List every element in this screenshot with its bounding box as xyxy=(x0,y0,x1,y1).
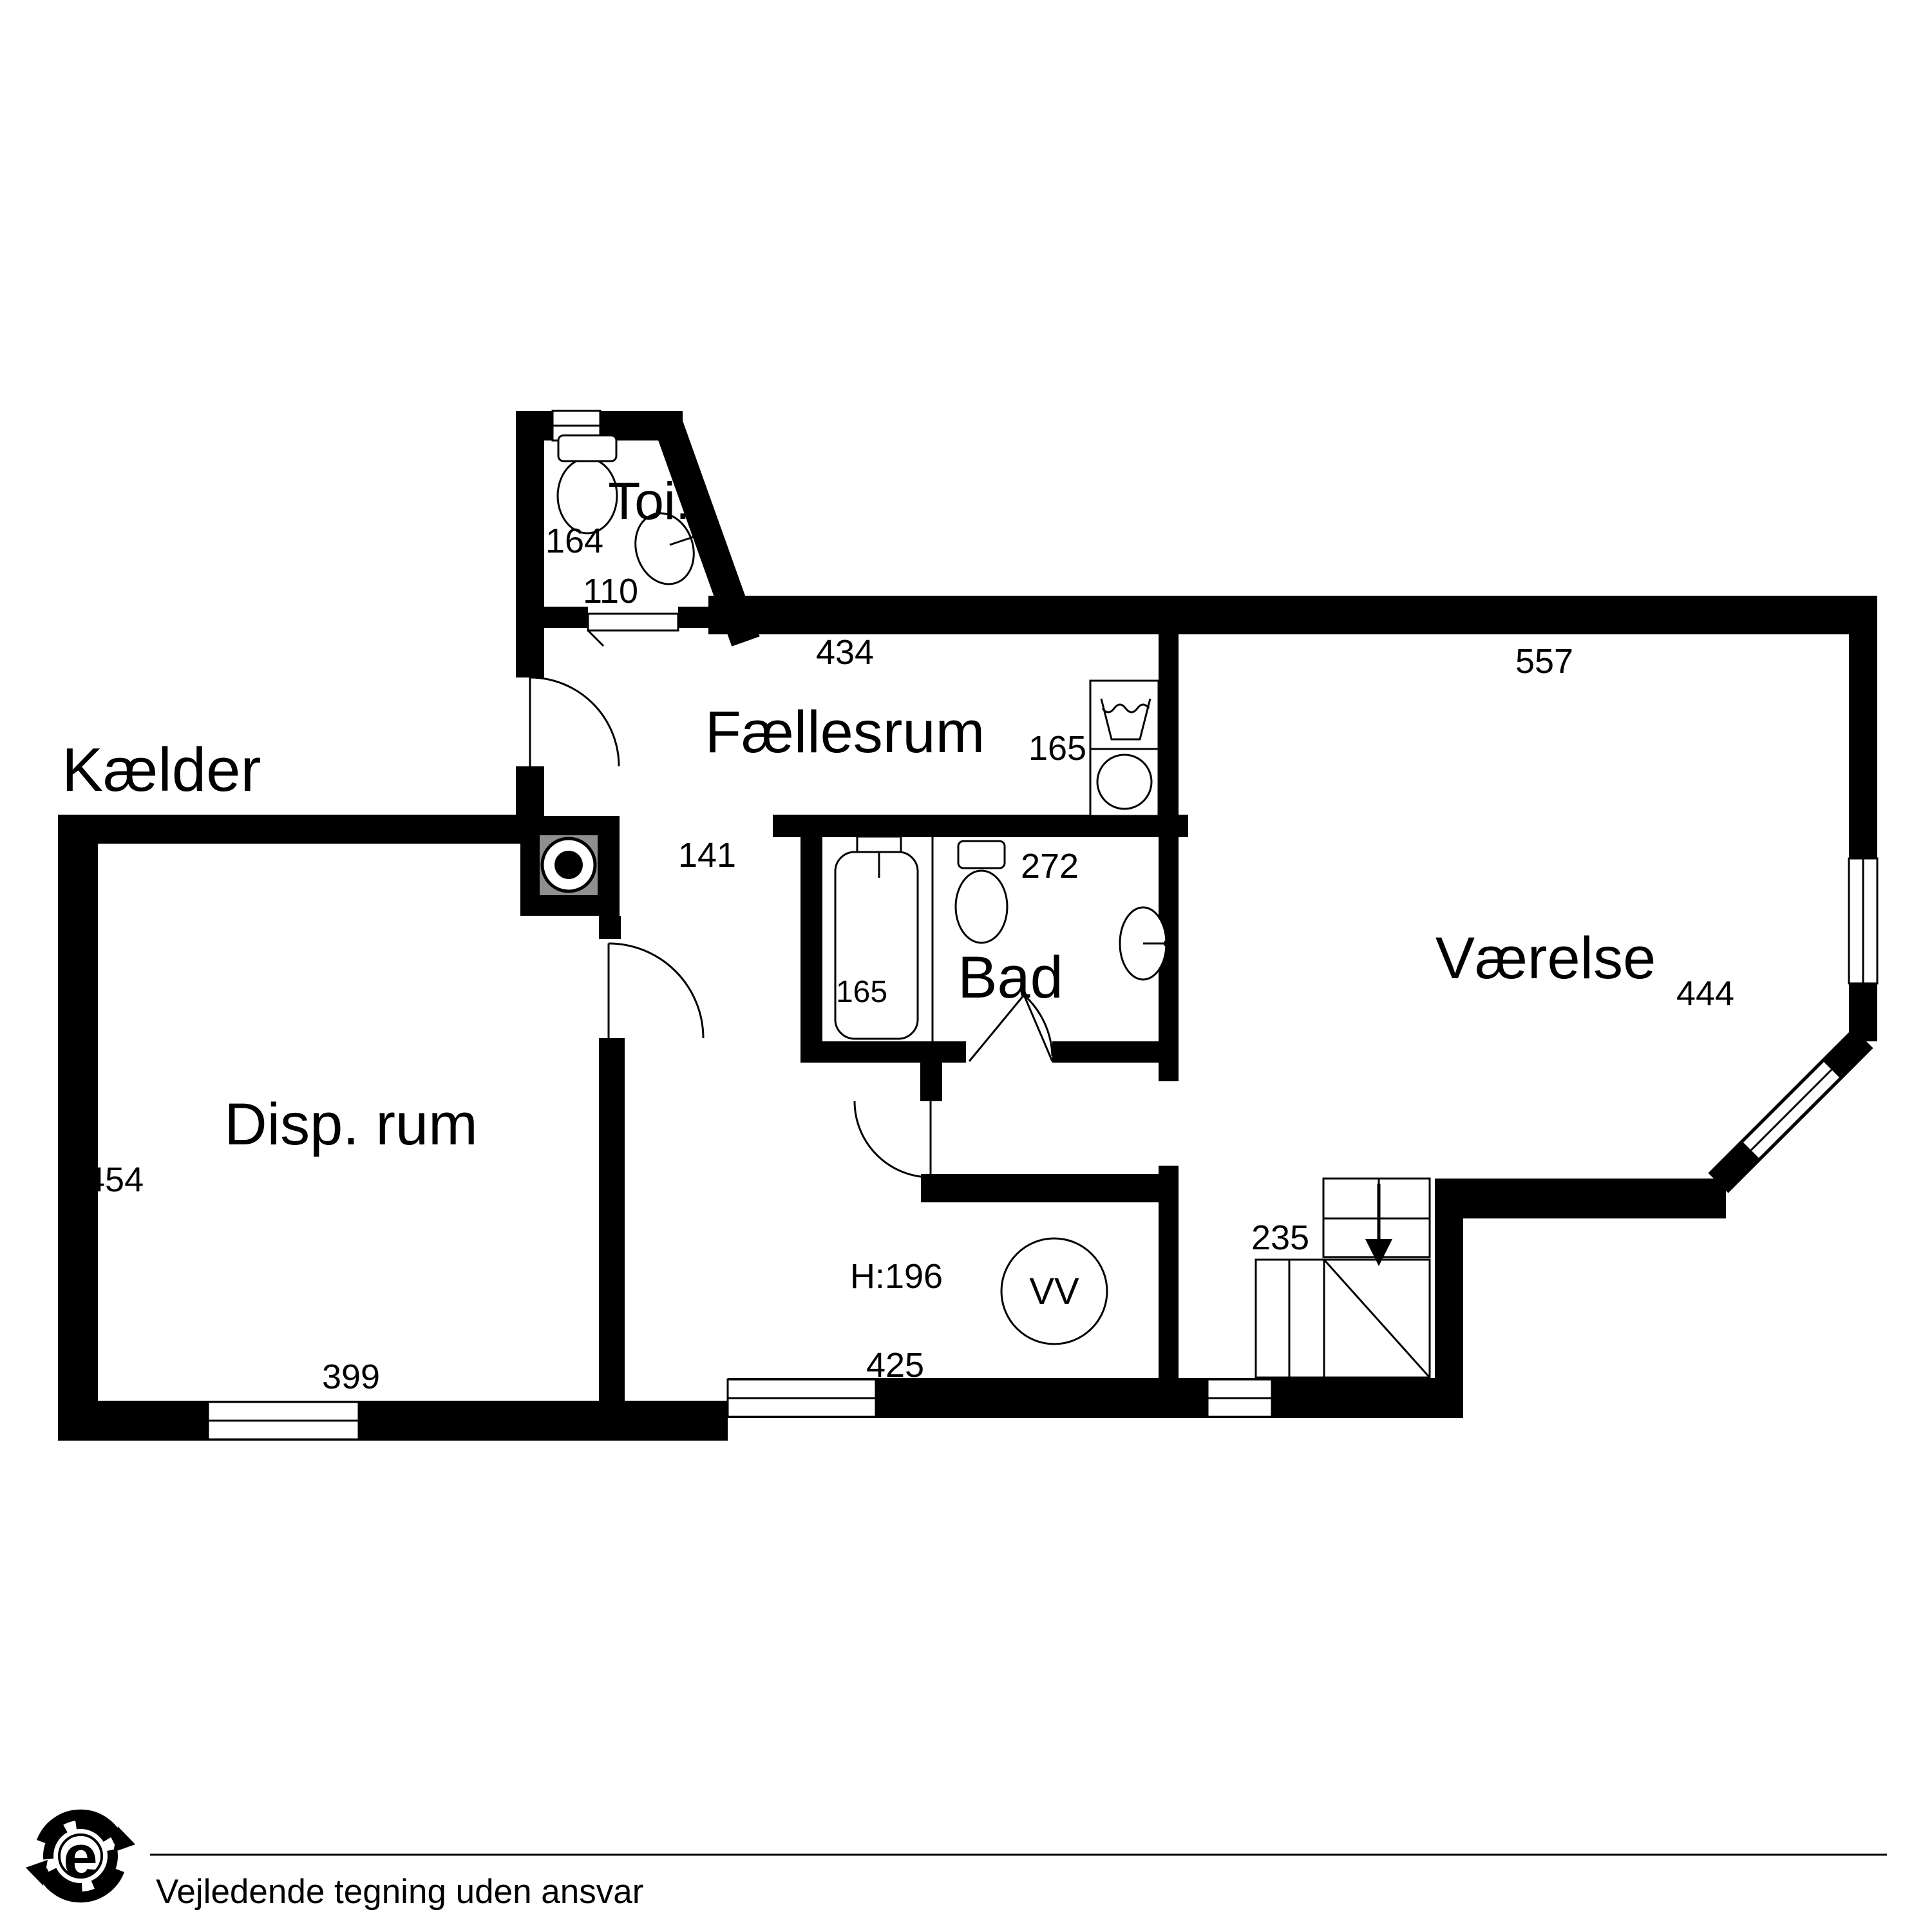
wall-right-upper xyxy=(1849,596,1877,858)
wall-disp-south xyxy=(58,1401,728,1441)
dim-bathtub: 165 xyxy=(836,975,887,1009)
washing-machine-icon xyxy=(1090,681,1159,816)
room-label-faellesrum: Fællesrum xyxy=(705,699,985,765)
chimney-icon xyxy=(520,816,620,916)
sliding-door-toi xyxy=(588,614,678,646)
wall-bad-door-stub xyxy=(920,1063,942,1101)
hot-water-label: VV xyxy=(1029,1271,1079,1312)
wall-chimney-stub xyxy=(599,916,621,939)
footer: e Vejledende tegning uden ansvar xyxy=(26,1815,1887,1911)
logo-letter: e xyxy=(63,1823,97,1891)
dim-vaerelse-top: 557 xyxy=(1515,642,1573,681)
window-disp-south xyxy=(208,1402,359,1439)
hot-water-tank: VV xyxy=(1001,1238,1107,1344)
room-label-vaerelse: Værelse xyxy=(1435,925,1656,991)
wall-disp-west xyxy=(58,815,98,1441)
wall-vaerelse-west xyxy=(1159,634,1179,1081)
wall-hall-north xyxy=(921,1174,1159,1202)
wall-top xyxy=(708,596,1877,634)
wall-bad-south-left xyxy=(800,1041,966,1063)
company-logo-icon: e xyxy=(26,1815,135,1897)
wall-bad-south-right xyxy=(1052,1041,1159,1063)
wall-toi-south-left xyxy=(544,607,588,628)
sink-tap-dot xyxy=(695,531,703,539)
footer-disclaimer: Vejledende tegning uden ansvar xyxy=(156,1873,643,1911)
dim-disp-bottom: 399 xyxy=(322,1358,380,1396)
dim-stairs: 235 xyxy=(1251,1218,1309,1257)
wall-faellesrum-west-a xyxy=(516,628,544,677)
dim-vaerelse-side: 444 xyxy=(1676,974,1734,1013)
dim-toi-width: 164 xyxy=(545,522,603,560)
dim-disp-side: 454 xyxy=(86,1160,144,1199)
window-stairs-south xyxy=(1207,1379,1272,1417)
wall-hall-east xyxy=(1159,1166,1179,1418)
dim-faellesrum-top: 434 xyxy=(816,633,874,672)
dim-toi-door: 110 xyxy=(583,572,638,611)
wall-hall-west xyxy=(599,1038,625,1418)
dim-hall-bottom: 425 xyxy=(866,1346,924,1385)
dim-washer-side: 165 xyxy=(1028,729,1086,768)
wall-faellesrum-south xyxy=(773,815,1188,837)
wall-disp-north xyxy=(58,815,522,844)
ceiling-height-label: H:196 xyxy=(850,1257,943,1296)
room-label-toi: Toi. xyxy=(608,472,690,531)
wall-vaerelse-south xyxy=(1435,1179,1726,1218)
window-vaerelse-east xyxy=(1849,858,1877,983)
wall-toi-south-right xyxy=(678,607,743,628)
floorplan-canvas: VV Kælder Toi. Fællesrum Bad Værelse Dis… xyxy=(0,0,1932,1932)
room-label-bad: Bad xyxy=(958,945,1063,1010)
room-label-disp: Disp. rum xyxy=(224,1092,478,1157)
wall-toi-west xyxy=(516,411,544,628)
stairs-icon xyxy=(1256,1179,1430,1378)
door-faellesrum xyxy=(530,677,619,766)
dim-bad-top: 272 xyxy=(1021,847,1079,885)
wall-faellesrum-west-b xyxy=(516,766,544,816)
page-title: Kælder xyxy=(62,735,261,804)
window-bay xyxy=(1743,1061,1840,1159)
door-hall-chimney xyxy=(609,943,703,1038)
wall-bad-west xyxy=(800,815,822,1063)
toilet-icon-bad xyxy=(956,841,1007,943)
window-hall-south xyxy=(728,1379,876,1417)
dim-passage: 141 xyxy=(678,836,736,875)
door-hall-lower xyxy=(855,1101,931,1177)
